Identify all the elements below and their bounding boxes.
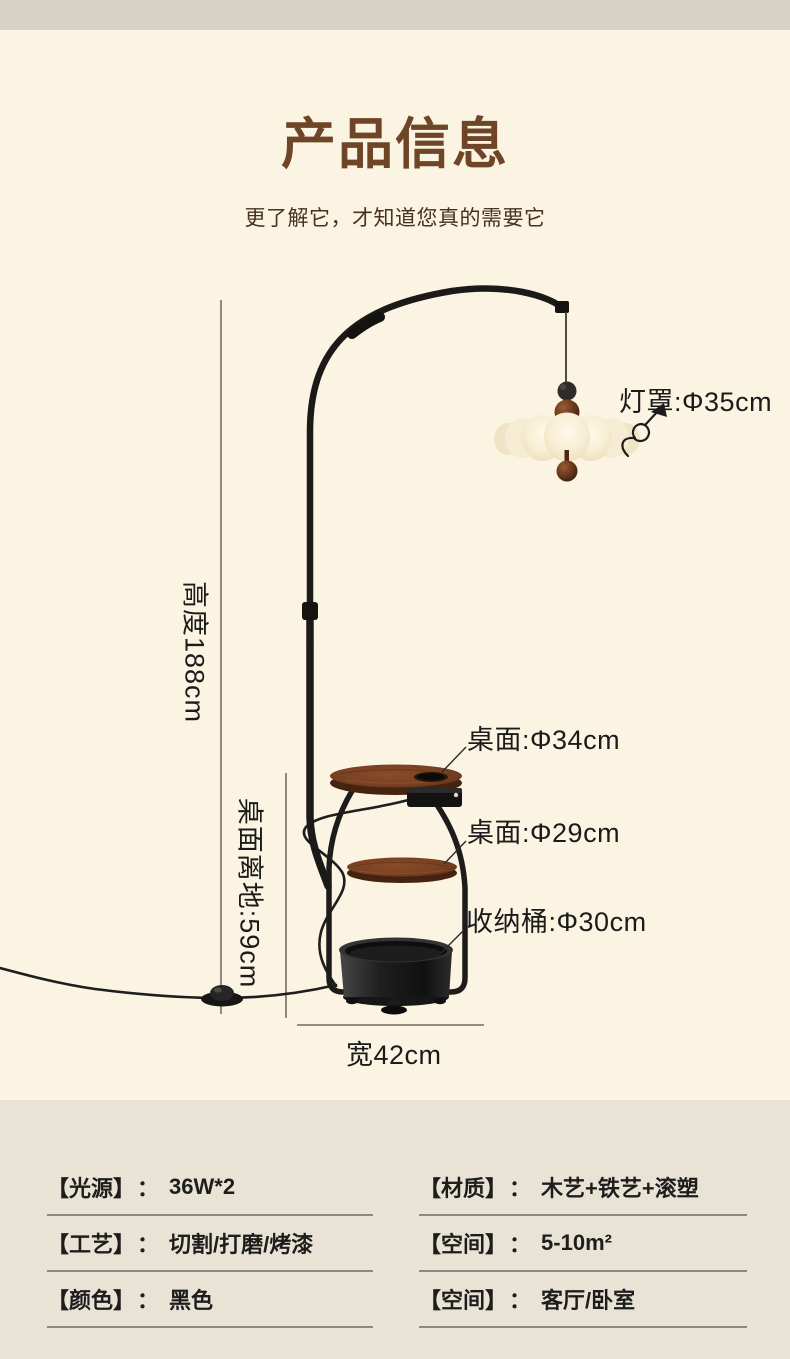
spec-row-space-size: 【空间】：5-10m² bbox=[419, 1216, 747, 1272]
charger-box bbox=[407, 788, 462, 807]
spec-label: 【材质】 bbox=[419, 1171, 507, 1203]
black-bead bbox=[558, 382, 577, 401]
arc-sleeve-joint bbox=[352, 317, 380, 334]
lamp-pole-lower bbox=[310, 620, 328, 886]
table-top-29cm bbox=[347, 858, 457, 884]
spec-column-left: 【光源】：36W*2 【工艺】：切割/打磨/烤漆 【颜色】：黑色 bbox=[47, 1160, 373, 1328]
spec-table: 【光源】：36W*2 【工艺】：切割/打磨/烤漆 【颜色】：黑色 【材质】：木艺… bbox=[0, 1100, 790, 1359]
spec-column-right: 【材质】：木艺+铁艺+滚塑 【空间】：5-10m² 【空间】：客厅/卧室 bbox=[419, 1160, 747, 1328]
storage-bucket bbox=[339, 938, 453, 1015]
spec-row-space-rooms: 【空间】：客厅/卧室 bbox=[419, 1272, 747, 1328]
table2-size-label: 桌面:Φ29cm bbox=[467, 811, 620, 850]
spec-label: 【空间】 bbox=[419, 1227, 507, 1259]
table-height-label: 桌面离地:59cm bbox=[233, 798, 272, 989]
spec-value: 5-10m² bbox=[541, 1230, 612, 1256]
shade-size-label: 灯罩:Φ35cm bbox=[619, 380, 772, 419]
spec-colon: ： bbox=[509, 1227, 531, 1259]
spec-value: 36W*2 bbox=[169, 1174, 235, 1200]
spec-colon: ： bbox=[509, 1171, 531, 1203]
spec-value: 客厅/卧室 bbox=[541, 1283, 635, 1315]
table1-leader-line bbox=[442, 747, 466, 772]
table1-size-label: 桌面:Φ34cm bbox=[467, 718, 620, 757]
height-label: 高度188cm bbox=[178, 581, 217, 723]
spec-row-color: 【颜色】：黑色 bbox=[47, 1272, 373, 1328]
spec-row-material: 【材质】：木艺+铁艺+滚塑 bbox=[419, 1160, 747, 1216]
spec-label: 【空间】 bbox=[419, 1283, 507, 1315]
spec-label: 【颜色】 bbox=[47, 1283, 135, 1315]
spec-value: 木艺+铁艺+滚塑 bbox=[541, 1171, 699, 1203]
spec-label: 【工艺】 bbox=[47, 1227, 135, 1259]
spec-colon: ： bbox=[509, 1283, 531, 1315]
spec-row-light-source: 【光源】：36W*2 bbox=[47, 1160, 373, 1216]
spec-value: 切割/打磨/烤漆 bbox=[169, 1227, 313, 1259]
spec-value: 黑色 bbox=[169, 1283, 213, 1315]
spec-colon: ： bbox=[137, 1227, 159, 1259]
spec-row-craft: 【工艺】：切割/打磨/烤漆 bbox=[47, 1216, 373, 1272]
spec-label: 【光源】 bbox=[47, 1171, 135, 1203]
width-label: 宽42cm bbox=[346, 1033, 442, 1072]
wood-bead-bottom bbox=[557, 461, 578, 482]
lamp-pole-arc bbox=[310, 289, 561, 640]
bucket-size-label: 收纳桶:Φ30cm bbox=[466, 900, 647, 939]
pole-collar-joint bbox=[302, 602, 318, 620]
spec-colon: ： bbox=[137, 1171, 159, 1203]
arc-tip-elbow bbox=[555, 301, 569, 313]
black-bead-highlight bbox=[560, 384, 566, 390]
spec-colon: ： bbox=[137, 1283, 159, 1315]
